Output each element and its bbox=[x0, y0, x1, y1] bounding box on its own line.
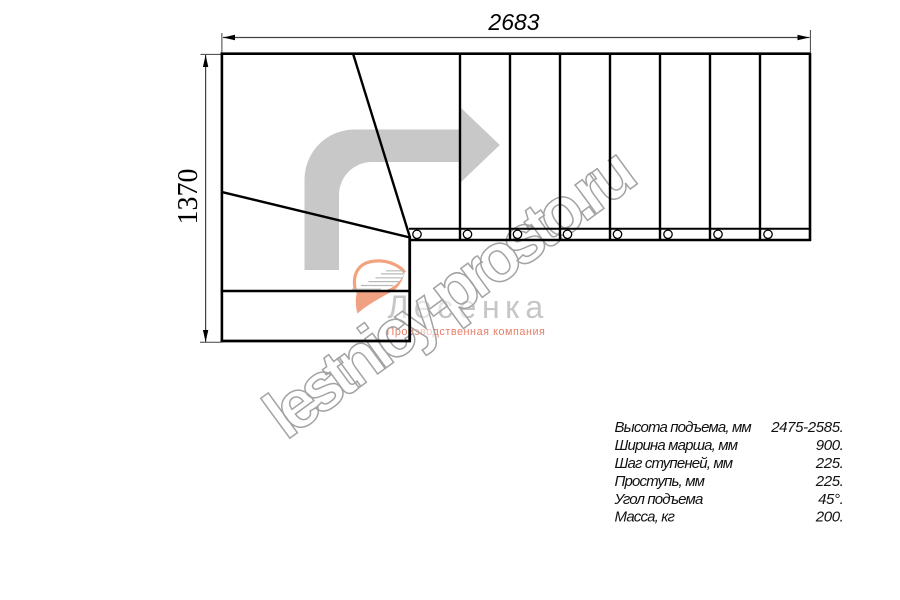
svg-text:Шаг ступеней, мм: Шаг ступеней, мм bbox=[615, 455, 733, 472]
svg-text:Угол подъема: Угол подъема bbox=[614, 491, 703, 508]
svg-text:45°.: 45°. bbox=[818, 491, 843, 508]
svg-text:225.: 225. bbox=[815, 473, 844, 490]
svg-text:2475-2585.: 2475-2585. bbox=[770, 419, 843, 436]
svg-text:Масса, кг: Масса, кг bbox=[615, 509, 676, 526]
svg-text:Ширина марша, мм: Ширина марша, мм bbox=[615, 437, 738, 454]
svg-text:900.: 900. bbox=[816, 437, 844, 454]
svg-text:2683: 2683 bbox=[487, 9, 539, 35]
svg-text:1370: 1370 bbox=[173, 169, 204, 225]
svg-text:225.: 225. bbox=[815, 455, 844, 472]
svg-text:200.: 200. bbox=[815, 509, 844, 526]
svg-text:Проступь, мм: Проступь, мм bbox=[615, 473, 705, 490]
svg-text:Высота подъема, мм: Высота подъема, мм bbox=[615, 419, 752, 436]
